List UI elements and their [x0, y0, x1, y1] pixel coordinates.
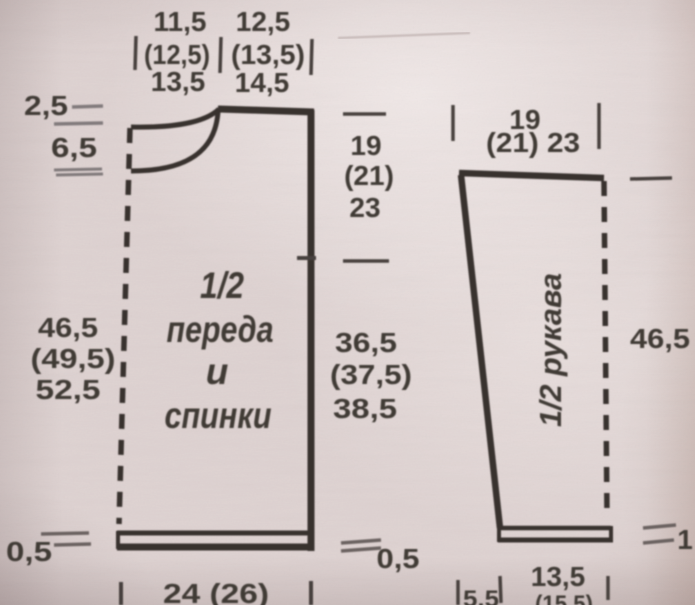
svg-text:(49,5): (49,5) [31, 343, 116, 374]
svg-text:1: 1 [677, 524, 693, 555]
svg-text:14,5: 14,5 [235, 67, 290, 98]
svg-text:(37,5): (37,5) [330, 359, 412, 390]
svg-text:2,5: 2,5 [24, 90, 68, 121]
svg-text:36,5: 36,5 [335, 327, 397, 358]
svg-text:переда: переда [167, 309, 274, 350]
svg-text:23: 23 [349, 192, 380, 223]
svg-text:52,5: 52,5 [36, 374, 101, 405]
svg-text:5,5: 5,5 [463, 586, 499, 605]
svg-text:(21): (21) [344, 160, 394, 191]
svg-text:(13,5): (13,5) [231, 39, 305, 70]
svg-text:12,5: 12,5 [236, 6, 291, 37]
svg-text:38,5: 38,5 [333, 393, 397, 424]
svg-text:и: и [206, 351, 229, 392]
svg-text:46,5: 46,5 [38, 312, 98, 343]
svg-text:(21) 23: (21) 23 [486, 127, 580, 158]
svg-text:0,5: 0,5 [377, 543, 420, 574]
svg-text:13,5: 13,5 [531, 561, 586, 592]
svg-text:спинки: спинки [165, 395, 272, 436]
svg-text:19: 19 [350, 130, 381, 161]
svg-text:1/2 рукава: 1/2 рукава [533, 273, 568, 427]
svg-text:24 (26): 24 (26) [163, 578, 269, 605]
svg-text:13,5: 13,5 [151, 66, 206, 97]
svg-text:(15,5): (15,5) [535, 591, 593, 605]
svg-text:11,5: 11,5 [154, 6, 207, 37]
svg-text:46,5: 46,5 [630, 323, 690, 354]
svg-text:0,5: 0,5 [6, 536, 52, 567]
svg-text:1/2: 1/2 [200, 265, 244, 306]
svg-text:6,5: 6,5 [51, 132, 97, 163]
